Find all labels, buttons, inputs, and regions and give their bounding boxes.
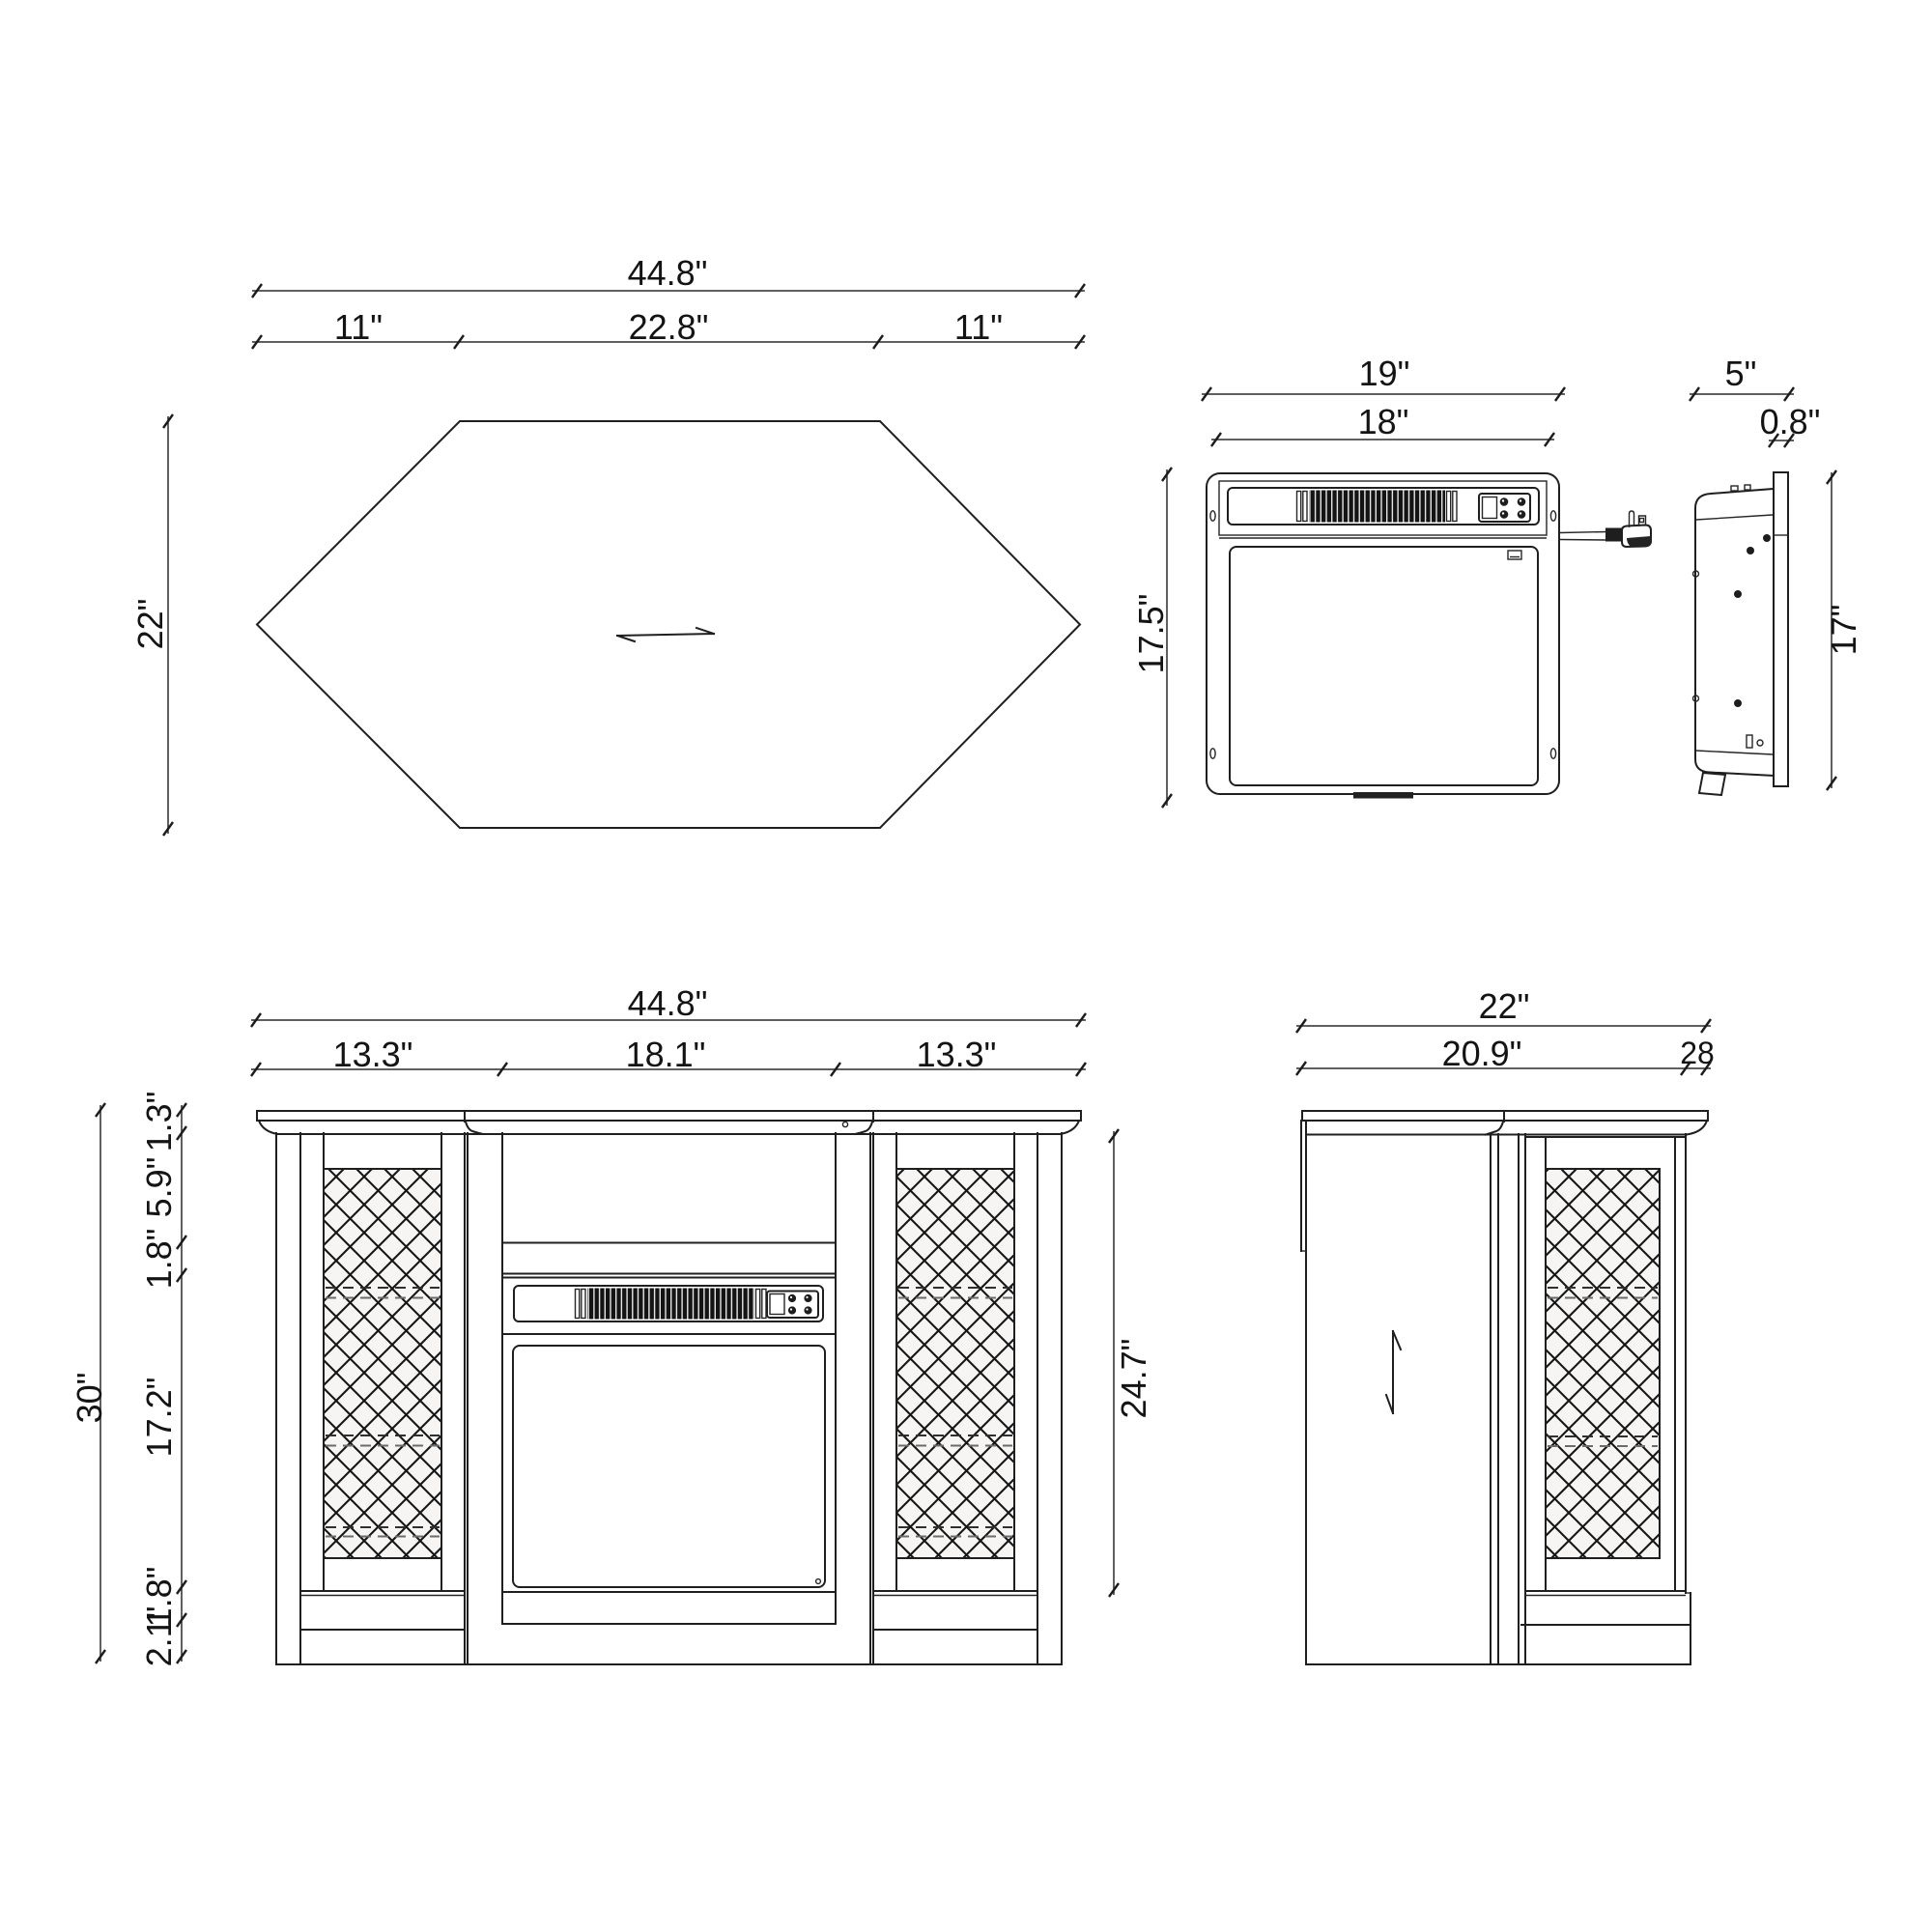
svg-text:18": 18": [1358, 402, 1409, 441]
svg-text:44.8": 44.8": [628, 983, 708, 1023]
svg-text:1.8": 1.8": [139, 1229, 179, 1290]
svg-text:17": 17": [1824, 605, 1863, 656]
svg-text:11": 11": [334, 307, 383, 347]
svg-text:24.7": 24.7": [1114, 1339, 1153, 1419]
svg-text:13.3": 13.3": [333, 1035, 413, 1074]
svg-text:17.5": 17.5": [1131, 594, 1171, 674]
svg-text:30": 30": [70, 1373, 109, 1424]
svg-text:5": 5": [1725, 354, 1757, 393]
svg-text:17.2": 17.2": [139, 1378, 179, 1458]
svg-text:0.8": 0.8": [1760, 402, 1821, 441]
svg-text:20.9": 20.9": [1442, 1034, 1522, 1073]
svg-text:28: 28: [1680, 1036, 1715, 1070]
svg-text:44.8": 44.8": [628, 253, 708, 293]
svg-text:22": 22": [1479, 986, 1530, 1026]
svg-text:11": 11": [954, 307, 1003, 347]
svg-text:13.3": 13.3": [917, 1035, 997, 1074]
svg-text:22": 22": [130, 599, 170, 650]
svg-text:19": 19": [1359, 354, 1410, 393]
svg-text:5.9": 5.9": [139, 1157, 179, 1218]
svg-text:22.8": 22.8": [629, 307, 709, 347]
svg-text:2.1": 2.1": [139, 1606, 179, 1667]
svg-text:1.3": 1.3": [139, 1092, 179, 1152]
svg-text:18.1": 18.1": [626, 1035, 706, 1074]
